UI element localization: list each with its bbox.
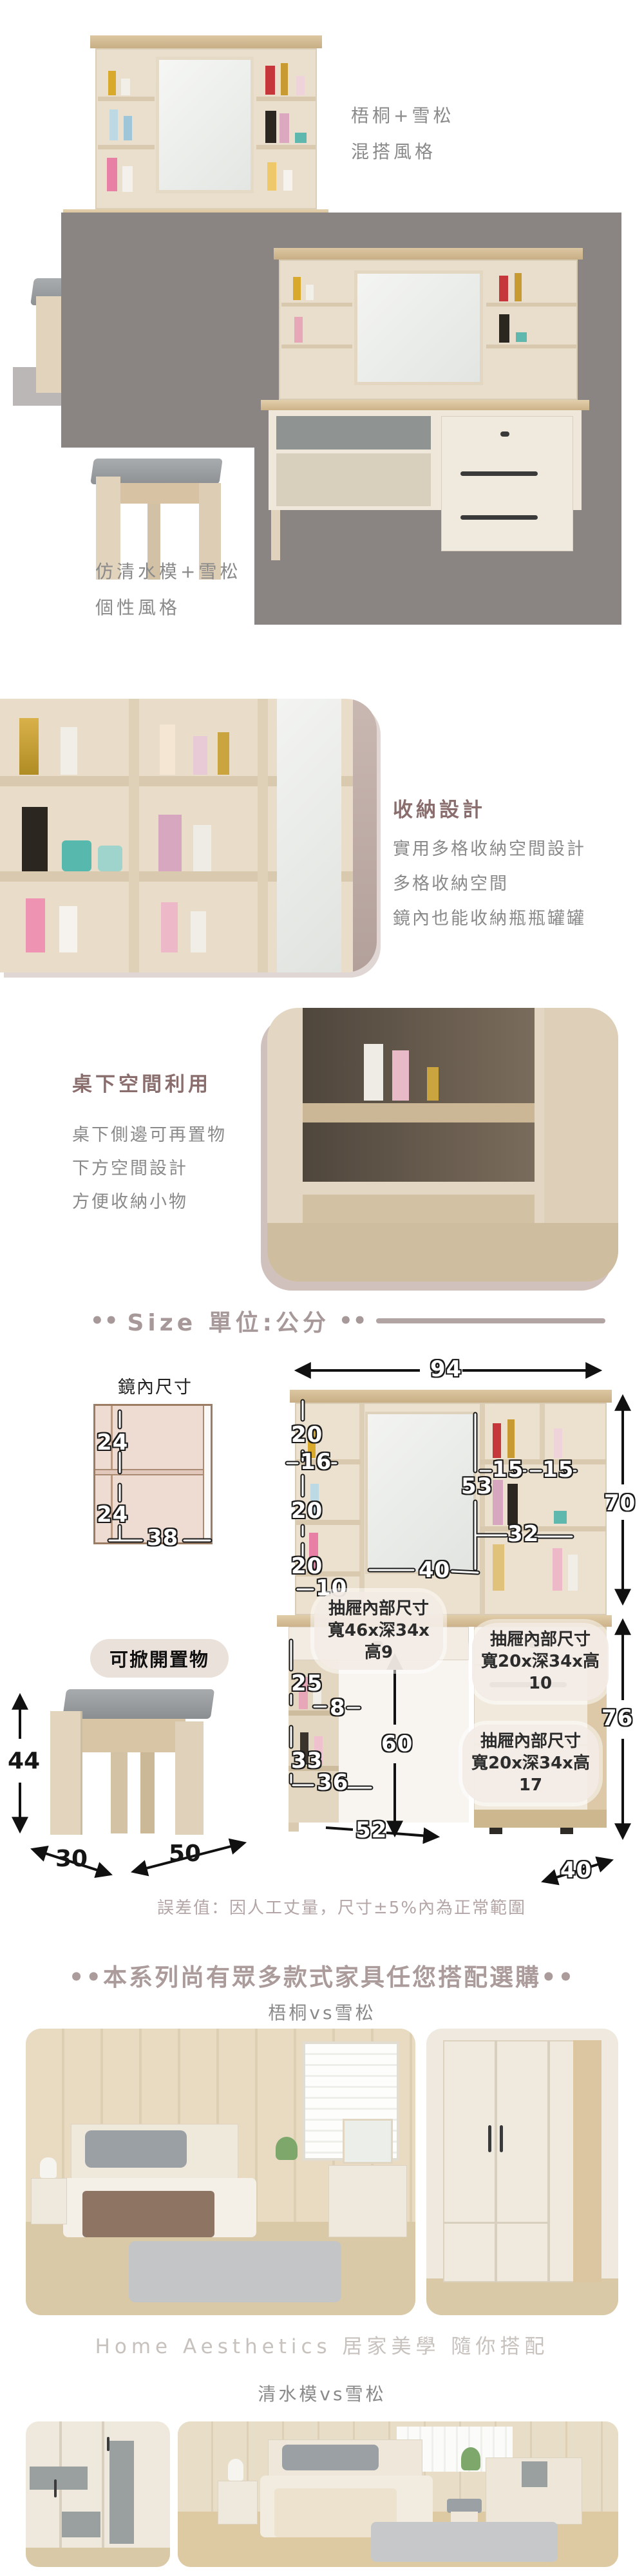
dim-side-w1: 8 xyxy=(330,1695,346,1721)
door-handle xyxy=(54,2479,57,2497)
cosmetic-bottle xyxy=(121,79,130,95)
under-desk-line1: 桌下側邊可再置物 xyxy=(72,1121,227,1146)
table-lamp xyxy=(228,2459,243,2481)
callout-line1: 抽屜內部尺寸 xyxy=(470,1731,591,1753)
cosmetic-box xyxy=(279,113,289,143)
shelf-line xyxy=(486,345,576,348)
dim-right-w2: 15 xyxy=(542,1457,574,1482)
cavity-dark xyxy=(303,1008,535,1182)
size-title-bar xyxy=(376,1318,605,1323)
wardrobe-drawer-line xyxy=(443,2222,550,2224)
vanity-mirror xyxy=(343,2119,393,2164)
concrete-panel xyxy=(522,2461,547,2487)
wardrobe-door-seam xyxy=(102,2421,104,2567)
dim-stool-depth: 50 xyxy=(169,1841,201,1867)
cosmetic-jar xyxy=(516,332,527,342)
dim-clearance-h: 60 xyxy=(381,1731,413,1757)
tolerance-note: 誤差值：因人工丈量，尺寸±5%內為正常範圍 xyxy=(157,1895,526,1918)
concrete-panel xyxy=(62,2512,100,2537)
hutch-top-board xyxy=(90,35,322,48)
style1-line2: 混搭風格 xyxy=(351,138,436,164)
series1-wardrobe-photo xyxy=(426,2029,618,2315)
cosmetic-bottle xyxy=(218,732,229,775)
door-handle xyxy=(488,2125,491,2152)
dim-right-w3: 32 xyxy=(507,1521,539,1547)
series2-wardrobe-photo xyxy=(26,2421,170,2567)
blanket xyxy=(82,2191,214,2237)
desk-leg xyxy=(271,510,280,560)
cosmetic-box xyxy=(499,314,509,343)
drawer-callout-2: 抽屜內部尺寸 寬20x深34x高10 xyxy=(472,1623,609,1701)
dim-stool-width: 30 xyxy=(55,1846,88,1872)
drawer-callout-3: 抽屜內部尺寸 寬20x深34x高17 xyxy=(462,1725,599,1803)
cosmetic-bottle xyxy=(392,1050,409,1101)
callout-line2: 寬46x深34x高9 xyxy=(322,1620,435,1664)
under-desk-line3: 方便收納小物 xyxy=(72,1188,188,1213)
cosmetic-bottle xyxy=(364,1044,383,1101)
callout-line1: 抽屜內部尺寸 xyxy=(322,1598,435,1620)
series-group1-label: 梧桐vs雪松 xyxy=(0,1999,644,2025)
series-header: ••本系列尚有眾多款式家具任您搭配選購•• xyxy=(0,1958,644,1993)
size-title-row: •• Size 單位:公分 •• xyxy=(90,1306,605,1336)
shelf-line xyxy=(98,97,155,101)
dim-hutch-height: 70 xyxy=(604,1490,636,1516)
dim-stool-height: 44 xyxy=(8,1748,40,1774)
cosmetic-bottle xyxy=(283,170,292,191)
headboard-cushion xyxy=(282,2445,379,2470)
style2-line2: 個性風格 xyxy=(95,594,180,620)
cosmetic-bottle xyxy=(293,277,301,300)
floor xyxy=(426,2278,618,2315)
cosmetic-bottle xyxy=(161,902,178,952)
cosmetic-bottle xyxy=(515,273,522,301)
vanity-cabinet xyxy=(328,2165,407,2237)
dim-side-w2: 36 xyxy=(317,1770,348,1795)
hutch-top-board xyxy=(274,248,583,260)
mirror xyxy=(354,270,483,385)
rug xyxy=(129,2241,341,2302)
plant xyxy=(461,2447,480,2470)
cosmetic-jar xyxy=(62,840,91,871)
callout-line1: 抽屜內部尺寸 xyxy=(480,1629,601,1651)
cosmetic-bottle xyxy=(296,76,305,95)
desk-open-space xyxy=(276,453,431,506)
cosmetic-bottle xyxy=(124,116,132,140)
cosmetic-bottle xyxy=(107,158,117,191)
dim-mirror-width: 40 xyxy=(419,1557,450,1583)
size-title-dots-left: •• xyxy=(90,1308,118,1334)
callout-line2: 寬20x深34x高17 xyxy=(470,1753,591,1797)
mirror-edge xyxy=(277,699,341,972)
dim-shelf-h-mid: 20 xyxy=(291,1498,323,1524)
floor-strip xyxy=(26,2548,170,2567)
shelf-line xyxy=(281,303,352,307)
drawer-handle xyxy=(460,471,538,476)
size-title-dots-right: •• xyxy=(339,1308,366,1334)
cosmetic-bottle xyxy=(294,317,303,343)
wardrobe-door-seam xyxy=(495,2040,497,2282)
shelf-divider xyxy=(258,699,268,972)
drawer-handle xyxy=(460,515,538,520)
cosmetic-box xyxy=(158,815,182,871)
side-shelf-board xyxy=(303,1103,535,1122)
nightstand xyxy=(31,2178,67,2224)
wardrobe-wood-panel xyxy=(573,2040,601,2282)
under-desk-title: 桌下空間利用 xyxy=(72,1068,211,1097)
rug xyxy=(371,2522,558,2562)
door-handle xyxy=(107,2437,109,2451)
dim-shelf-w-left: 16 xyxy=(300,1449,332,1475)
callout-line2: 寬20x深34x高10 xyxy=(480,1651,601,1695)
cosmetic-bottle xyxy=(19,718,39,775)
dim-desk-height: 76 xyxy=(601,1705,633,1731)
dim-shelf-h-top: 20 xyxy=(291,1422,323,1448)
cosmetic-bottle xyxy=(281,63,288,95)
shelf-line xyxy=(256,97,316,101)
storage-line1: 實用多格收納空間設計 xyxy=(393,835,586,860)
stool-apron xyxy=(110,483,207,504)
shelf-line xyxy=(256,145,316,149)
dim-mirror-height: 53 xyxy=(461,1473,493,1499)
cosmetic-bottle xyxy=(306,285,314,300)
shelf-divider xyxy=(129,699,139,972)
style1-line1: 梧桐+雪松 xyxy=(351,102,454,128)
storage-line2: 多格收納空間 xyxy=(393,869,509,895)
under-desk-photo xyxy=(267,1008,618,1282)
concrete-panel xyxy=(30,2467,88,2490)
series1-bedroom-photo xyxy=(26,2029,415,2315)
dim-total-width: 94 xyxy=(430,1356,462,1382)
door-handle xyxy=(500,2125,503,2152)
concrete-drawer xyxy=(276,416,431,450)
cosmetic-box xyxy=(265,111,276,143)
dim-right-w1: 15 xyxy=(492,1457,524,1482)
cosmetic-bottle xyxy=(193,736,207,775)
cosmetic-bottle xyxy=(109,109,118,140)
cosmetic-bottle xyxy=(191,911,206,952)
cosmetic-box xyxy=(22,807,48,871)
shelf-line xyxy=(98,145,155,149)
cosmetic-bottle xyxy=(59,906,77,952)
cosmetic-bottle xyxy=(265,66,275,95)
wardrobe-door-seam xyxy=(59,2421,62,2567)
cosmetic-bottle xyxy=(108,71,116,95)
style2-line1: 仿清水模+雪松 xyxy=(95,558,241,583)
series-group2-label: 清水模vs雪松 xyxy=(0,2380,644,2406)
cosmetic-bottle xyxy=(160,724,175,775)
storage-closeup-photo xyxy=(0,699,377,972)
product-detail-page: 梧桐+雪松 混搭風格 仿清水模+雪松 個性風格 xyxy=(0,0,644,2576)
cosmetic-bottle xyxy=(26,898,45,952)
wardrobe-door-seam xyxy=(547,2040,550,2282)
brand-line: Home Aesthetics 居家美學 隨你搭配 xyxy=(0,2330,644,2359)
drawer-callout-1: 抽屜內部尺寸 寬46x深34x高9 xyxy=(314,1592,443,1670)
drawer-knob xyxy=(500,431,509,437)
cosmetic-bottle xyxy=(193,825,211,871)
floor-strip xyxy=(267,1223,618,1282)
dim-depth: 40 xyxy=(560,1857,592,1883)
cosmetic-bottle xyxy=(267,162,276,191)
shelf-line xyxy=(486,303,576,307)
under-desk-line2: 下方空間設計 xyxy=(72,1154,188,1179)
mirror xyxy=(156,57,254,193)
cosmetic-jar xyxy=(295,133,307,143)
dim-clearance-w: 52 xyxy=(355,1817,387,1843)
nightstand xyxy=(218,2481,258,2524)
bottom-board xyxy=(303,1195,535,1223)
stool-cushion xyxy=(447,2499,482,2513)
plant xyxy=(276,2137,298,2160)
stool-leg xyxy=(36,296,62,393)
cosmetic-bottle xyxy=(61,727,77,775)
desk-top xyxy=(261,400,589,410)
cosmetic-bottle xyxy=(499,276,508,301)
table-lamp xyxy=(40,2157,57,2178)
headboard-cushion xyxy=(85,2130,187,2168)
shelf-line xyxy=(281,345,352,348)
dim-side-h1: 25 xyxy=(291,1671,323,1696)
series2-bedroom-photo xyxy=(178,2421,618,2567)
cosmetic-bottle xyxy=(427,1067,439,1101)
storage-line3: 鏡內也能收納瓶瓶罐罐 xyxy=(393,904,586,929)
cosmetic-jar xyxy=(98,846,122,871)
cosmetic-bottle xyxy=(122,166,133,192)
storage-title: 收納設計 xyxy=(393,793,486,822)
size-title: Size 單位:公分 xyxy=(127,1304,330,1338)
concrete-panel xyxy=(109,2441,134,2544)
mauve-edge-band xyxy=(353,699,377,972)
